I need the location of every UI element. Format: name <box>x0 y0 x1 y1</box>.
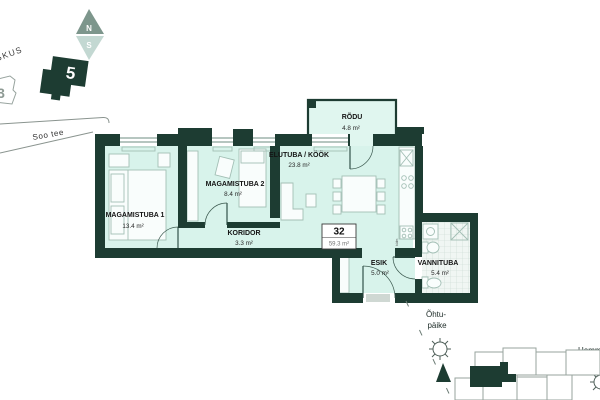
window <box>312 134 348 146</box>
chair <box>377 179 385 188</box>
chair <box>377 192 385 201</box>
room-area-vannituba: 5.4 m² <box>431 270 449 277</box>
window <box>253 134 275 146</box>
room-area-magamistuba1: 13.4 m² <box>122 223 143 230</box>
wardrobe <box>187 151 198 221</box>
site-context: Soo tee KESKUS N S 5 3 <box>0 9 109 153</box>
pillow <box>111 174 124 202</box>
room-area-rodu: 4.8 m² <box>342 125 360 132</box>
balcony-door-opening <box>350 134 373 146</box>
compass-north-label: N <box>86 24 92 33</box>
toilet <box>427 242 439 253</box>
apartment-total-area: 59.3 m² <box>329 242 349 248</box>
room-area-elutuba: 23.8 m² <box>288 162 309 169</box>
balcony-pillar <box>308 100 316 108</box>
chair <box>377 205 385 214</box>
dresser <box>109 154 129 167</box>
room-label-magamistuba2: MAGAMISTUBA 2 <box>206 181 265 188</box>
sun-icon <box>429 338 451 360</box>
fridge-label: külm <box>395 239 399 246</box>
room-label-magamistuba1: MAGAMISTUBA 1 <box>106 212 165 219</box>
compass-south-label: S <box>86 41 92 50</box>
floorplan-page: Soo tee KESKUS N S 5 3 <box>0 0 600 400</box>
room-label-esik: ESIK <box>371 260 387 267</box>
chair <box>333 205 341 214</box>
chair <box>333 179 341 188</box>
building-cluster-footprint <box>455 348 600 400</box>
room-label-vannituba: VANNITUBA <box>418 260 459 267</box>
room-area-koridor: 3.3 m² <box>235 240 253 247</box>
street-line-upper <box>0 117 109 124</box>
room-label-koridor: KORIDOR <box>227 230 260 237</box>
room-area-magamistuba2: 8.4 m² <box>224 191 242 198</box>
evening-sun-label-line1: Õhtu- <box>426 310 446 319</box>
building-5-footprint: 5 <box>39 55 89 104</box>
building-3-number: 3 <box>0 85 5 101</box>
esik-passage-floor <box>362 248 395 258</box>
room-area-esik: 5.0 m² <box>371 270 389 277</box>
district-label: KESKUS <box>0 44 24 68</box>
window <box>120 134 157 146</box>
building-3-footprint: 3 <box>0 76 16 104</box>
nightstand <box>158 153 170 167</box>
evening-sun-label-line2: päike <box>427 321 447 330</box>
coffee-table <box>306 194 316 207</box>
chair <box>333 192 341 201</box>
bathroom-sink <box>427 278 441 288</box>
washing-machine <box>423 224 438 239</box>
apartment-info-box: 32 59.3 m² <box>322 224 356 249</box>
apartment-number: 32 <box>333 227 345 238</box>
pillow <box>241 151 264 163</box>
entrance-threshold <box>366 294 390 302</box>
dining-table <box>342 176 376 212</box>
entrance-arrow-icon <box>436 363 451 382</box>
room-label-rodu: RÕDU <box>342 112 363 121</box>
room-label-elutuba: ELUTUBA / KÖÖK <box>269 150 329 159</box>
compass: N S <box>76 9 104 60</box>
floorplan-canvas: Soo tee KESKUS N S 5 3 <box>0 0 600 400</box>
window <box>212 134 233 146</box>
